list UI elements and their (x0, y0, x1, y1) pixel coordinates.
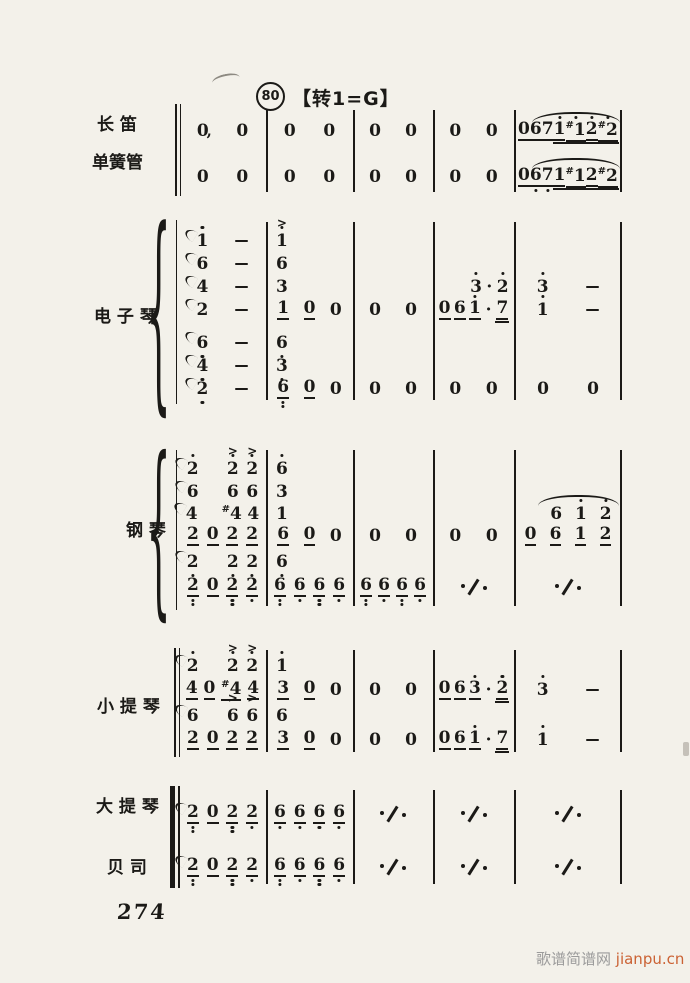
digit: 0 (449, 169, 461, 186)
octave-dots-below (318, 825, 321, 829)
octave-dots-above (579, 498, 582, 502)
digit: 6 (333, 577, 345, 597)
note-token: 1 (537, 729, 549, 751)
digit: 2 (226, 857, 238, 877)
note-token: 6 (276, 458, 288, 480)
decoration (561, 806, 573, 823)
digit: 2 (227, 658, 239, 675)
digit: 3 (537, 279, 549, 296)
decoration (586, 309, 599, 312)
measure-cell: 00 (353, 299, 433, 321)
system-line (175, 104, 177, 196)
digit: 6 (454, 730, 466, 750)
decoration (555, 584, 559, 588)
digit: · (486, 732, 492, 749)
digit: 6 (277, 526, 289, 546)
digit: #2 (598, 167, 618, 188)
note-token: 2 (187, 458, 199, 480)
repeat-sign (459, 803, 489, 825)
repeat-sign (378, 803, 408, 825)
dash-token (235, 332, 248, 354)
digit: 0 (405, 381, 417, 398)
decoration (278, 603, 281, 606)
note-token: 0 (207, 803, 219, 825)
note-token: 6 (550, 503, 562, 525)
note-token: 2 (197, 299, 209, 321)
note-token: 0 (284, 120, 296, 142)
digit: 6 (187, 484, 199, 501)
decoration (235, 342, 248, 345)
measure-cell (514, 253, 622, 275)
digit: 2 (226, 577, 238, 597)
measure-cell: 6666 (353, 576, 433, 598)
decoration (280, 651, 283, 654)
brace: { (146, 446, 163, 616)
measure-cell (433, 803, 514, 825)
note-token: 2 (246, 803, 258, 825)
octave-dots-below (418, 598, 421, 602)
note-token: 0 (236, 166, 248, 188)
digit: 6 (274, 804, 286, 824)
page-edge-mark (683, 742, 689, 756)
digit: 1 (554, 121, 566, 141)
tie-icon (182, 352, 197, 367)
decoration (467, 806, 479, 823)
measure-cell (353, 481, 433, 503)
measure-cell: 22>2> (179, 655, 266, 677)
note-token: 0 (207, 729, 219, 751)
digit: 6 (530, 121, 542, 141)
note-token: 2 (187, 803, 199, 825)
digit: 0 (204, 680, 216, 700)
note-token: 3 (537, 679, 549, 701)
note-token: 2 (246, 525, 258, 547)
note-token: 6 (187, 705, 199, 727)
digit: 0 (486, 169, 498, 186)
octave-dots-above (191, 453, 194, 457)
digit: 0 (304, 300, 316, 320)
note-token: 0 (405, 299, 417, 321)
digit: 1 (575, 506, 587, 523)
note-token: 6 (246, 481, 258, 503)
decoration (574, 116, 577, 119)
decoration (338, 599, 341, 602)
measure-cell: 2 (179, 378, 266, 400)
repeat-sign-glyph (553, 805, 583, 823)
digit: 2 (246, 526, 258, 546)
decoration (278, 879, 281, 882)
watermark-site-name: 歌谱简谱网 (536, 950, 616, 968)
note-token: 4 (186, 679, 198, 701)
decoration (577, 586, 581, 590)
octave-dots-below (318, 878, 321, 887)
measure-cell (353, 355, 433, 377)
digit: 0 (537, 381, 549, 398)
octave-dots-below (338, 878, 341, 882)
note-token: 6> (246, 705, 258, 727)
repeat-sign-glyph (553, 578, 583, 596)
digit: 6 (550, 506, 562, 523)
digit: · (486, 302, 492, 319)
digit: 6 (276, 554, 288, 571)
measure-cell (433, 856, 514, 878)
octave-dots-below (201, 400, 204, 404)
stave-row: 210000061·71 (179, 299, 622, 321)
tie-icon (182, 329, 197, 344)
measure-cell: 300 (266, 729, 353, 751)
note-token: 3 (277, 729, 289, 751)
decoration (235, 263, 248, 266)
decoration (191, 826, 194, 829)
note-token: 0 (323, 166, 335, 188)
measure-cell (514, 856, 622, 878)
note-token: · (485, 276, 494, 298)
score-systems: 长 笛单簧管0,00000000671#12#2000000000671#12#… (0, 0, 690, 983)
digit: 2 (586, 121, 598, 141)
digit: 0 (449, 528, 461, 545)
digit: 0 (587, 381, 599, 398)
measure-cell: 6 (179, 253, 266, 275)
note-token: 7 (496, 729, 508, 751)
octave-dots-above (280, 225, 283, 229)
note-token: 2 (600, 525, 612, 547)
measure-cell: 2022 (179, 856, 266, 878)
tie-icon (182, 273, 197, 288)
decoration (364, 599, 367, 602)
measure-cell: 2022 (179, 525, 266, 547)
note-token: 0 (449, 120, 461, 142)
measure-cell (433, 332, 514, 354)
decoration (473, 675, 476, 678)
decoration (235, 365, 248, 368)
note-token: 7 (542, 166, 554, 188)
digit: 1 (277, 300, 289, 320)
digit: 0 (439, 680, 451, 700)
stave-row: 43 (179, 355, 622, 377)
measure-cell: 00 (433, 120, 514, 142)
decoration (577, 866, 581, 870)
decoration (380, 811, 384, 815)
repeat-sign-glyph (553, 858, 583, 876)
digit: 0 (284, 123, 296, 140)
measure-cell: 4 (179, 355, 266, 377)
note-token: 6 (197, 332, 209, 354)
digit: 0 (405, 123, 417, 140)
measure-cell: 00 (433, 378, 514, 400)
measure-cell: 0612 (514, 525, 622, 547)
note-token: 0 (405, 729, 417, 751)
note-token: 0 (486, 120, 498, 142)
digit: 3 (470, 279, 482, 296)
digit: 6 (333, 804, 345, 824)
decoration (461, 584, 465, 588)
decoration (473, 725, 476, 728)
note-token: 0 (284, 166, 296, 188)
measure-cell: 6 (179, 332, 266, 354)
digit: 0 (207, 577, 219, 597)
note-token: 2 (246, 856, 258, 878)
decoration (541, 675, 544, 678)
decoration (400, 599, 403, 602)
digit: 2 (187, 554, 199, 571)
measure-cell (353, 458, 433, 480)
stave-row: 22>2>1 (179, 655, 622, 677)
decoration (251, 651, 254, 654)
digit: 6 (360, 577, 372, 597)
measure-cell (514, 458, 622, 480)
note-token: 3 (277, 679, 289, 701)
octave-dots-above (231, 650, 234, 654)
note-token: 0 (369, 378, 381, 400)
system-line (170, 786, 175, 888)
note-token: 0 (518, 120, 530, 142)
decoration (231, 830, 234, 833)
stave-row: 202266666666 (179, 576, 622, 598)
system-line (176, 450, 177, 610)
octave-dots-below (318, 598, 321, 607)
digit: 0 (304, 526, 316, 546)
repeat-sign-glyph (459, 578, 489, 596)
decoration (231, 454, 234, 457)
digit: 7 (496, 300, 508, 320)
digit: 6 (313, 577, 325, 597)
digit: 0 (405, 302, 417, 319)
octave-dots-below (231, 878, 234, 887)
note-token: 2 (187, 525, 199, 547)
digit: 2 (226, 730, 238, 750)
note-token: 0 (330, 299, 342, 321)
decoration (586, 739, 599, 742)
measure-cell: 6 (266, 253, 353, 275)
digit: 6 (294, 857, 306, 877)
decoration (380, 864, 384, 868)
note-token: 3 (276, 481, 288, 503)
tie-icon (173, 853, 188, 868)
digit: 4 (186, 680, 198, 700)
stave-row: 2226 (179, 551, 622, 573)
digit: 6 (294, 577, 306, 597)
digit: #4 (222, 505, 242, 523)
measure-cell (433, 576, 514, 598)
note-token: 4 (197, 355, 209, 377)
note-token: 6 (276, 253, 288, 275)
note-token: 2 (226, 856, 238, 878)
decoration (298, 879, 301, 882)
octave-dots-above (590, 115, 593, 119)
octave-dots-above (473, 724, 476, 728)
note-token: 6 (454, 679, 466, 701)
measure-cell: 3 (266, 481, 353, 503)
digit: 6 (277, 379, 289, 399)
measure-cell (433, 503, 514, 525)
measure-cell: 100 (266, 299, 353, 321)
note-token: 6 (274, 856, 286, 878)
digit: 6 (454, 300, 466, 320)
decoration (579, 499, 582, 502)
measure-cell: 2 (179, 299, 266, 321)
note-token: 2 (586, 120, 598, 142)
instrument-label: 长 笛 (97, 110, 137, 135)
decoration (191, 830, 194, 833)
measure-cell: 1 (179, 230, 266, 252)
instrument-label: 贝 司 (107, 853, 147, 878)
note-token: 0 (369, 729, 381, 751)
note-token: 0 (207, 525, 219, 547)
note-token: 0 (207, 856, 219, 878)
decoration (483, 866, 487, 870)
digit: 7 (542, 167, 554, 187)
decoration (586, 286, 599, 289)
decoration (251, 599, 254, 602)
note-token: 1 (575, 525, 587, 547)
note-token: 2 (496, 679, 508, 701)
digit: 0 (518, 121, 530, 141)
repeat-sign-glyph (378, 858, 408, 876)
stave-row: 000000000671#12#2 (179, 166, 622, 188)
measure-cell: 00 (179, 166, 266, 188)
note-token: #1 (566, 166, 586, 188)
decoration (402, 866, 406, 870)
decoration (561, 859, 573, 876)
note-token: 0 (369, 525, 381, 547)
decoration (191, 599, 194, 602)
digit: 2 (227, 554, 239, 571)
digit: 2 (226, 526, 238, 546)
watermark-link[interactable]: jianpu.cn (616, 950, 685, 968)
octave-dots-above (501, 674, 504, 678)
dash-token (586, 679, 599, 701)
repeat-sign (553, 856, 583, 878)
digit: 1 (575, 526, 587, 546)
note-token: 2 (226, 576, 238, 598)
digit: 6 (550, 526, 562, 546)
note-token: 2> (227, 458, 239, 480)
note-token: 0 (439, 679, 451, 701)
repeat-sign (553, 803, 583, 825)
decoration (555, 864, 559, 868)
digit: 0 (369, 169, 381, 186)
note-token: 2> (246, 655, 258, 677)
measure-cell: 063·2 (433, 679, 514, 701)
note-token: 6 (276, 551, 288, 573)
digit: 2 (187, 658, 199, 675)
note-token: 0 (439, 729, 451, 751)
digit: 7 (496, 730, 508, 750)
digit: 3 (276, 484, 288, 501)
digit: 2 (600, 526, 612, 546)
repeat-sign (553, 576, 583, 598)
measure-cell: 00 (514, 378, 622, 400)
measure-cell: 1> (266, 230, 353, 252)
note-token: 3 (276, 276, 288, 298)
digit: 0 (369, 302, 381, 319)
digit: 0 (486, 381, 498, 398)
decoration (282, 401, 285, 404)
decoration (318, 603, 321, 606)
decoration (534, 189, 537, 192)
decoration (278, 883, 281, 886)
digit: 0 (330, 732, 342, 749)
stave-row: 433·23 (179, 276, 622, 298)
digit: 0 (207, 730, 219, 750)
note-token: 2 (197, 378, 209, 400)
decoration (400, 603, 403, 606)
note-token: 6 (333, 856, 345, 878)
note-token: 2 (246, 576, 258, 598)
tie-icon (173, 455, 188, 470)
note-token: 2 (246, 551, 258, 573)
digit: 0 (369, 682, 381, 699)
digit: 2 (187, 461, 199, 478)
measure-cell (353, 253, 433, 275)
digit: 6 (378, 577, 390, 597)
digit: 0 (369, 123, 381, 140)
decoration (541, 295, 544, 298)
measure-cell: 6666 (266, 576, 353, 598)
octave-dots-below (251, 825, 254, 829)
digit: 2 (187, 804, 199, 824)
octave-dots-above (231, 453, 234, 457)
digit: 6 (294, 804, 306, 824)
measure-cell: 1 (266, 655, 353, 677)
page-number: 274 (116, 899, 168, 924)
note-token: 6 (313, 803, 325, 825)
digit: 2 (187, 577, 199, 597)
octave-dots-below (231, 825, 234, 834)
tie-icon (173, 800, 188, 815)
digit: 1 (197, 233, 209, 250)
measure-cell (353, 230, 433, 252)
digit: 0 (330, 302, 342, 319)
octave-dots-below (278, 825, 281, 829)
digit: 4 (197, 358, 209, 375)
decoration (280, 226, 283, 229)
decoration (231, 651, 234, 654)
repeat-sign-glyph (459, 805, 489, 823)
digit: 0 (405, 682, 417, 699)
digit: 3 (537, 682, 549, 699)
note-token: 0 (518, 166, 530, 188)
octave-dots-below (282, 400, 285, 409)
measure-cell: 061·7 (433, 299, 514, 321)
digit: 0 (369, 732, 381, 749)
note-token: 0 (330, 525, 342, 547)
tie-icon (173, 548, 188, 563)
measure-cell: 6666 (266, 856, 353, 878)
tie-icon (182, 296, 197, 311)
note-token: 1 (537, 299, 549, 321)
digit: 0 (207, 857, 219, 877)
note-token: 0 (439, 299, 451, 321)
note-token: 1 (277, 299, 289, 321)
digit: 6 (414, 577, 426, 597)
decoration (606, 116, 609, 119)
octave-dots-above (280, 453, 283, 457)
digit: 6 (227, 708, 239, 725)
decoration (501, 272, 504, 275)
octave-dots-above (251, 650, 254, 654)
digit: 6 (274, 577, 286, 597)
decoration (483, 586, 487, 590)
note-token: 2 (497, 276, 509, 298)
note-token: 0 (330, 679, 342, 701)
digit: 2 (227, 461, 239, 478)
note-token: 6 (313, 576, 325, 598)
note-token: 6 (530, 120, 542, 142)
note-token: 1 (469, 299, 481, 321)
octave-dots-below (338, 825, 341, 829)
digit: 0 (304, 680, 316, 700)
